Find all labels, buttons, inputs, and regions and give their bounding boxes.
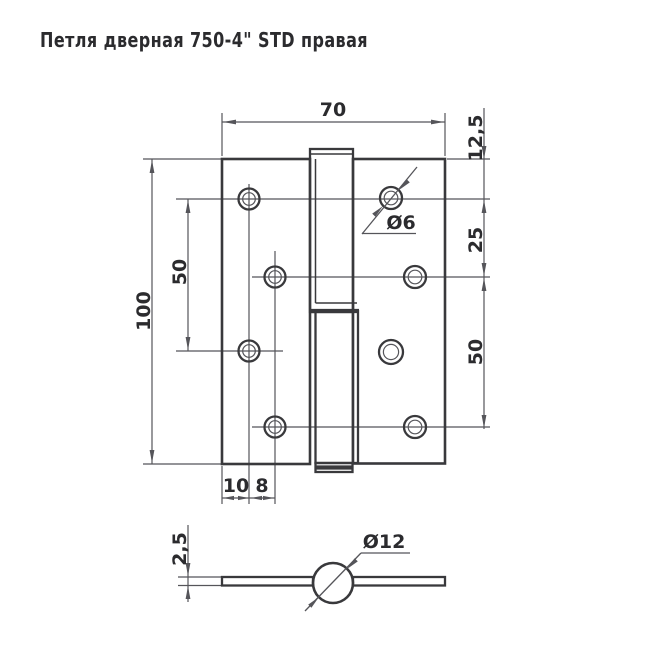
screw-holes-left [239,189,286,438]
pin-hole [379,340,403,364]
dim-top-edge-to-hole: 12,5 [465,115,487,162]
dim-hole-column-step: 8 [255,475,268,497]
drawing-canvas: Петля дверная 750-4" STD правая [0,0,650,650]
knuckle-upper-section [310,149,353,312]
dim-height: 100 [133,291,155,331]
dim-knuckle-diameter: Ø12 [363,531,406,553]
left-leaf [222,159,310,464]
right-leaf-profile [353,577,445,586]
side-view: 2,5 Ø12 [169,525,445,611]
dia12-leader [305,553,410,611]
dim-right-hole-pitch: 50 [465,339,487,365]
dim-edge-to-hole-column: 10 [223,475,249,497]
dim-left-hole-pitch: 50 [169,259,191,285]
dim-leaf-thickness: 2,5 [169,532,191,566]
dim-upper-hole-pitch: 25 [465,227,487,253]
dim-width: 70 [320,99,346,121]
left-leaf-profile [222,577,313,586]
dim-screw-hole-diameter: Ø6 [386,212,415,234]
knuckle-lower-section [316,311,359,463]
front-view: 70 12,5 25 50 100 50 10 8 Ø6 [133,99,490,504]
drawing-title: Петля дверная 750-4" STD правая [40,28,368,52]
hinge-technical-drawing: Петля дверная 750-4" STD правая [0,0,650,650]
knuckle [309,149,359,472]
